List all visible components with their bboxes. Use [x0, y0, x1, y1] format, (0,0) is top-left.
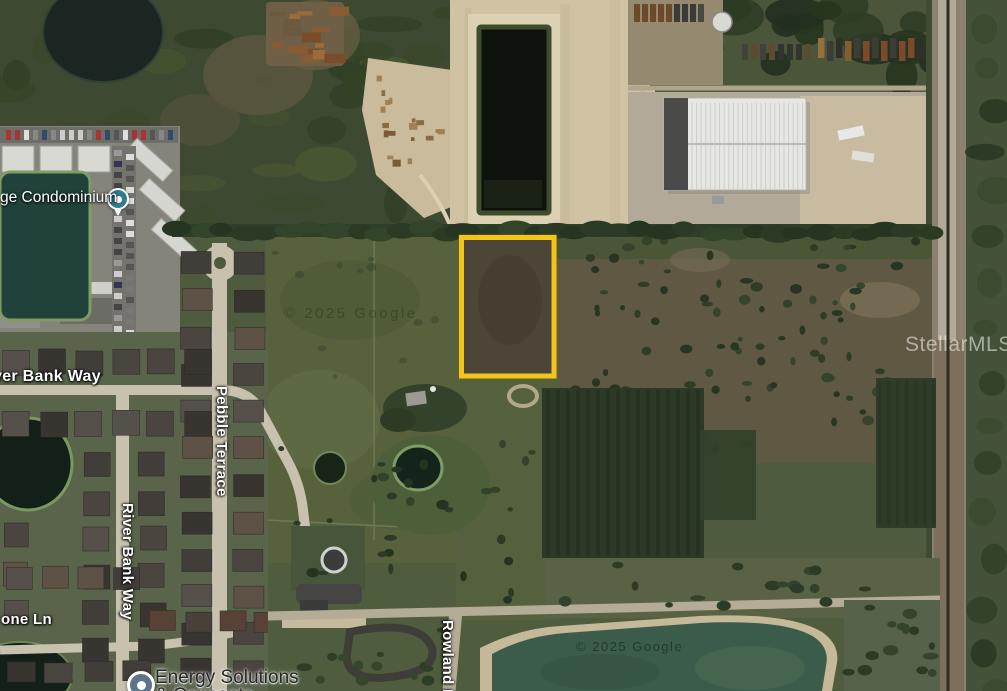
- mls-watermark: StellarMLS: [905, 334, 1007, 355]
- street-label-river-bank-way-h: ver Bank Way: [0, 369, 101, 385]
- small-pond-2: [314, 452, 346, 484]
- poi-label-energy-line2: & Concepts: [155, 686, 253, 691]
- street-label-rowland-dr: Rowland Dr: [440, 620, 455, 691]
- street-label-pebble-terrace: Pebble Terrace: [214, 386, 229, 497]
- street-label-river-bank-way-v: River Bank Way: [120, 503, 135, 620]
- energy-map-pin[interactable]: [127, 671, 155, 691]
- street-label-one-ln: one Ln: [1, 612, 52, 627]
- satellite-map[interactable]: ge Condominium ver Bank Way Pebble Terra…: [0, 0, 1007, 691]
- google-watermark-field: © 2025 Google: [284, 306, 418, 321]
- satellite-imagery: [0, 0, 1007, 691]
- pin-dot: [137, 681, 146, 690]
- place-label-condominium: ge Condominium: [0, 190, 117, 206]
- google-watermark-pond: © 2025 Google: [576, 640, 683, 653]
